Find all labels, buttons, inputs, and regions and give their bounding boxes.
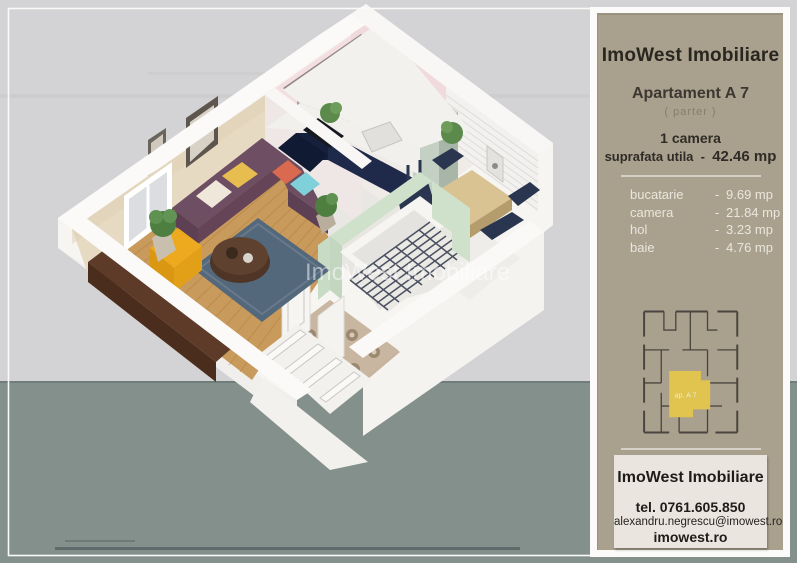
svg-text:ImoWest Imobiliare: ImoWest Imobiliare <box>305 259 510 286</box>
svg-text:ap. A 7: ap. A 7 <box>674 390 696 399</box>
